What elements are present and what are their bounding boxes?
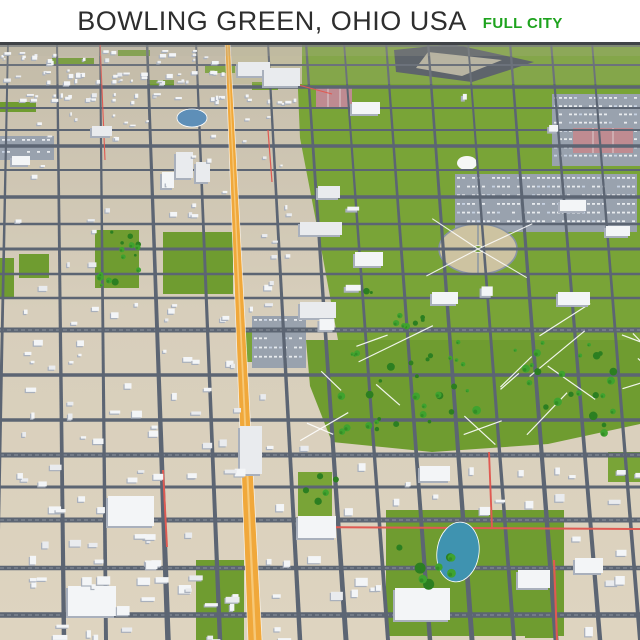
dome	[457, 156, 477, 170]
product-preview-page: BOWLING GREEN, OHIO USA FULL CITY	[0, 0, 640, 640]
city-map-render	[0, 42, 640, 640]
header: BOWLING GREEN, OHIO USA FULL CITY	[0, 0, 640, 42]
horizon-edge-layer	[0, 42, 640, 45]
sports-court	[573, 128, 633, 153]
pond	[177, 109, 207, 127]
city-map-svg	[0, 42, 640, 640]
full-city-badge: FULL CITY	[483, 11, 563, 32]
page-title: BOWLING GREEN, OHIO USA	[77, 6, 467, 37]
haze-layer	[0, 42, 640, 84]
